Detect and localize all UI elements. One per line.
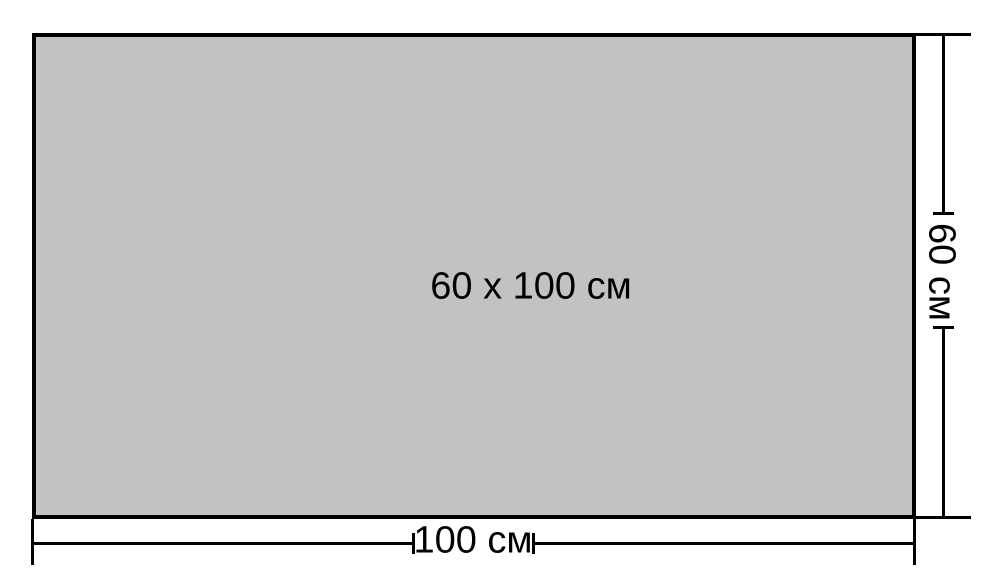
height-dimension-tick-top [933, 212, 954, 215]
size-label: 60 x 100 см [430, 266, 631, 309]
dimension-diagram: 60 x 100 см 100 см 60 см [0, 0, 1000, 582]
width-dimension-label: 100 см [413, 520, 532, 563]
rectangle-shape: 60 x 100 см [32, 33, 916, 519]
height-dimension-label: 60 см [920, 223, 963, 321]
height-dimension-line-bottom-segment [942, 329, 945, 518]
height-dimension-line-top-segment [942, 34, 945, 213]
height-dimension-tick-bottom [933, 326, 954, 329]
width-dimension-line-left-segment [32, 542, 413, 545]
width-dimension-line-right-segment [534, 542, 916, 545]
